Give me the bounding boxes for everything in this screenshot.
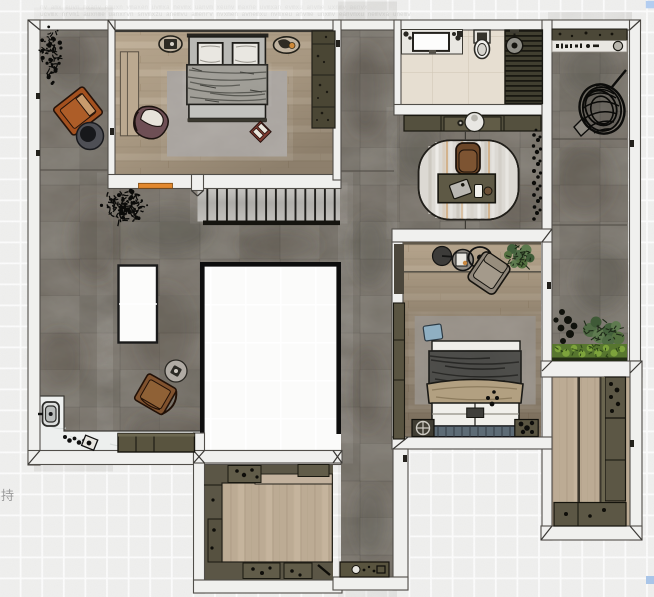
svg-text:持: 持 <box>1 488 14 503</box>
svg-text:ucvmx nrvmi auxnme uanxrvn snv: ucvmx nrvmi auxnme uanxrvn snvmxzu anemv… <box>40 11 411 18</box>
svg-text:nv amx euvn mxanv emuxn vmaxen: nv amx euvn mxanv emuxn vmaxen uvmxa nev… <box>40 4 368 11</box>
